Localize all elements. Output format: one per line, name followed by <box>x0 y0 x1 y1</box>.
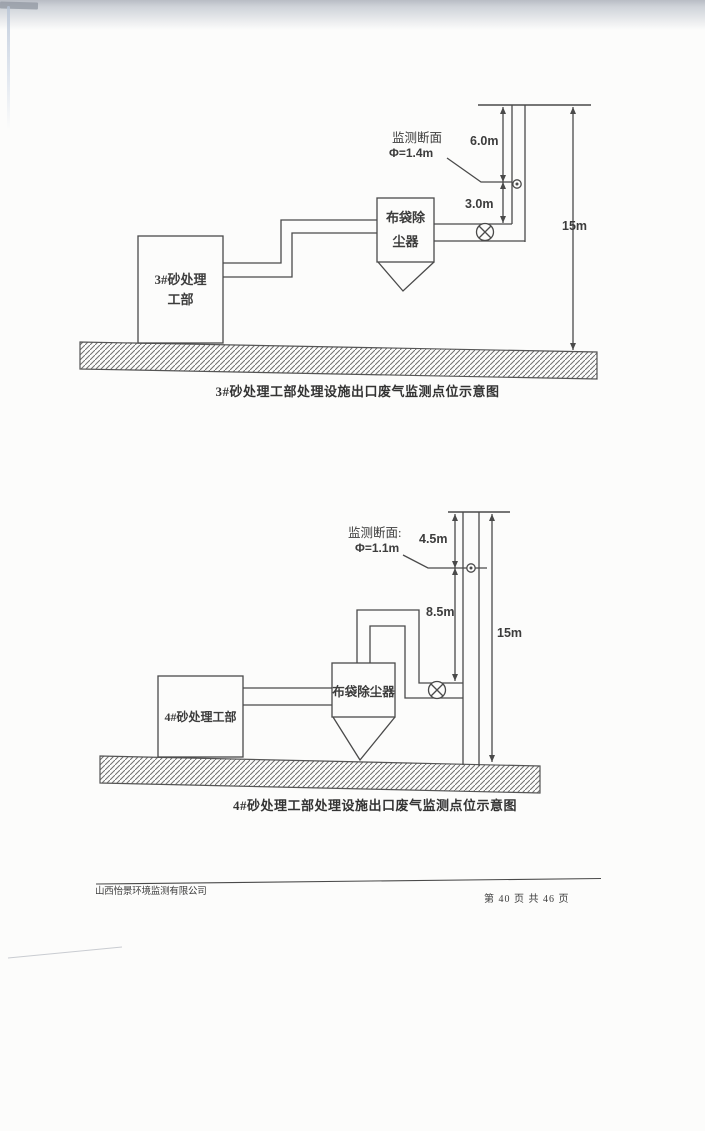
figure2-valve-icon <box>429 682 446 699</box>
figure1-source-box-line1: 3#砂处理 <box>154 270 206 290</box>
footer-company-name: 山西怡景环境监测有限公司 <box>95 883 207 897</box>
figure1-collector-label: 布袋除 尘器 <box>377 198 434 262</box>
figure1-valve-icon <box>477 224 494 241</box>
figure2-source-box-text: 4#砂处理工部 <box>164 708 236 725</box>
figure1-ground-hatch <box>80 342 597 379</box>
figure1-monitor-section-label: 监测断面 <box>392 127 442 146</box>
figure2-monitoring-point-icon <box>467 564 475 572</box>
figure1-source-box-line2: 工部 <box>167 290 193 310</box>
figure2-inlet-duct <box>243 688 332 705</box>
figure1-caption: 3#砂处理工部处理设施出口废气监测点位示意图 <box>5 381 705 400</box>
figure1-inlet-duct <box>223 220 377 277</box>
figure2-dim-top-label: 4.5m <box>419 532 448 546</box>
figure2-ground-hatch <box>100 756 540 793</box>
figure2-diameter-label: Φ=1.1m <box>355 541 399 555</box>
figure1-diameter-label: Φ=1.4m <box>389 146 433 160</box>
scan-faint-line <box>8 947 122 958</box>
figure2-dim-total-label: 15m <box>497 626 522 640</box>
figure2-collector-funnel <box>333 717 395 760</box>
figure1-dim-mid-label: 3.0m <box>465 197 494 211</box>
figure1-dim-total-label: 15m <box>562 219 587 233</box>
figure1-dim-top-label: 6.0m <box>470 134 499 148</box>
figure2-collector-text: 布袋除尘器 <box>332 681 395 700</box>
figure1-monitoring-point-icon <box>513 180 521 188</box>
figure2-dim-mid-label: 8.5m <box>426 605 455 619</box>
figure1-source-box-label: 3#砂处理 工部 <box>138 236 223 343</box>
figure1-collector-line2: 尘器 <box>392 230 418 254</box>
scanned-report-page: 监测断面 Φ=1.4m 6.0m 3.0m 15m 3#砂处理 工部 布袋除 尘… <box>0 0 705 1131</box>
diagram-linework <box>0 0 705 1131</box>
figure2-arrowheads <box>452 514 495 762</box>
figure1-collector-funnel <box>378 262 434 291</box>
figure2-source-box-label: 4#砂处理工部 <box>158 676 243 757</box>
footer-page-number: 第 40 页 共 46 页 <box>484 890 570 905</box>
figure2-collector-label: 布袋除尘器 <box>332 663 395 717</box>
figure1-collector-line1: 布袋除 <box>386 206 425 230</box>
figure2-caption: 4#砂处理工部处理设施出口废气监测点位示意图 <box>45 795 705 814</box>
figure2-monitor-section-label: 监测断面: <box>348 522 401 541</box>
